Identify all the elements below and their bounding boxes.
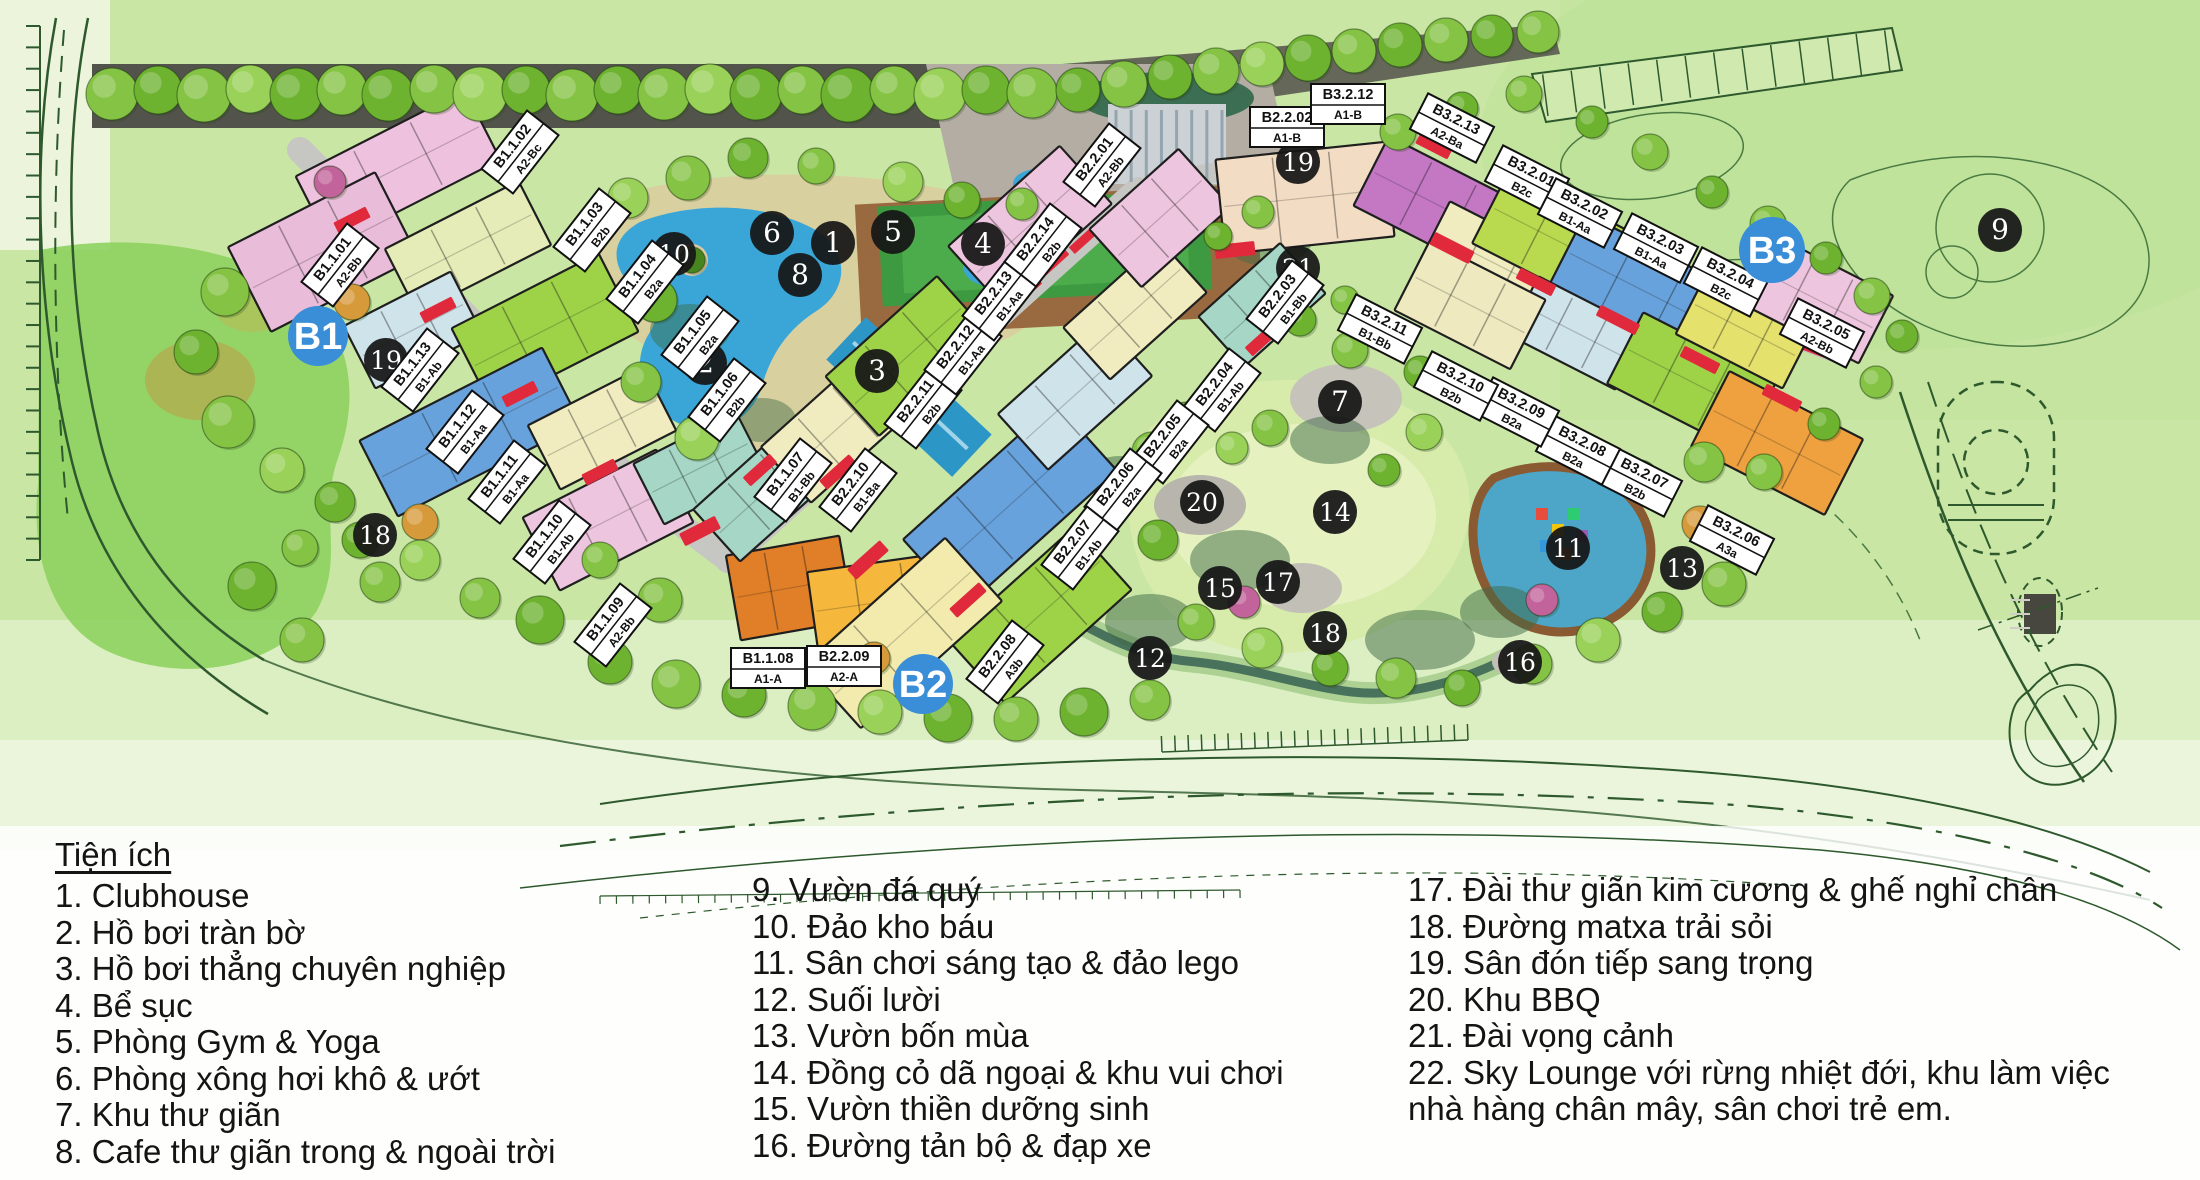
map-shape xyxy=(405,545,423,563)
map-shape xyxy=(323,71,346,94)
tick-mark xyxy=(1348,729,1349,745)
map-shape xyxy=(1010,192,1024,206)
amenity-marker-11: 11 xyxy=(1546,526,1590,570)
unit-type: A1-B xyxy=(1273,131,1301,145)
map-shape xyxy=(209,403,232,426)
map-shape xyxy=(553,76,576,99)
amenity-marker-number: 5 xyxy=(884,215,902,248)
map-shape xyxy=(1522,16,1541,35)
site-plan-canvas: 221234567891011121314151617181819192021B… xyxy=(0,0,2200,1180)
map-shape xyxy=(277,75,300,98)
map-shape xyxy=(1530,588,1544,602)
map-shape xyxy=(365,567,383,585)
tick-mark xyxy=(1414,726,1415,742)
zone-badge-label: B3 xyxy=(1748,230,1797,272)
amenity-marker-5: 5 xyxy=(871,210,915,254)
map-shape xyxy=(921,75,944,98)
map-shape xyxy=(407,508,423,524)
amenity-marker-number: 6 xyxy=(763,216,781,249)
map-shape xyxy=(1384,29,1404,49)
map-shape xyxy=(1430,24,1450,44)
amenity-marker-20: 20 xyxy=(1180,480,1224,524)
unit-code: B2.2.09 xyxy=(819,649,870,665)
map-shape xyxy=(1859,283,1875,299)
map-shape xyxy=(1337,337,1353,353)
amenity-marker-3: 3 xyxy=(855,349,899,393)
map-shape xyxy=(1582,624,1602,644)
map-shape xyxy=(1890,324,1904,338)
tick-mark xyxy=(1308,730,1309,746)
tick-mark xyxy=(1441,725,1442,741)
map-shape xyxy=(1247,633,1265,651)
map-shape xyxy=(465,583,483,601)
amenity-marker-number: 18 xyxy=(359,521,391,550)
map-shape xyxy=(1062,74,1082,94)
amenity-marker-12: 12 xyxy=(1128,636,1172,680)
unit-label-B3.2.12: B3.2.12A1-B xyxy=(1311,84,1385,124)
unit-type: A2-A xyxy=(830,670,858,684)
map-shape xyxy=(1408,360,1422,374)
amenity-marker-number: 12 xyxy=(1134,644,1166,673)
map-shape xyxy=(140,72,162,94)
map-shape xyxy=(1257,415,1273,431)
map-shape xyxy=(1013,74,1036,97)
amenity-marker-number: 20 xyxy=(1186,488,1218,517)
map-shape xyxy=(658,666,680,688)
tick-mark xyxy=(1374,728,1375,744)
tick-mark xyxy=(1427,726,1428,742)
map-shape xyxy=(460,74,484,98)
tick-mark xyxy=(1241,733,1242,749)
tick-mark xyxy=(1228,733,1229,749)
map-shape xyxy=(968,72,990,94)
map-shape xyxy=(1372,458,1386,472)
map-shape xyxy=(794,688,816,710)
map-shape xyxy=(613,183,631,201)
amenity-marker-9: 9 xyxy=(1978,208,2022,252)
unit-label-B2.2.09: B2.2.09A2-A xyxy=(807,646,881,686)
unit-code: B2.2.02 xyxy=(1262,110,1313,126)
map-shape xyxy=(888,167,906,185)
map-shape xyxy=(93,75,116,98)
map-shape xyxy=(645,75,668,98)
amenity-marker-number: 8 xyxy=(791,258,809,291)
map-shape xyxy=(1338,35,1358,55)
map-shape xyxy=(1864,370,1878,384)
map-shape xyxy=(286,624,306,644)
map-shape xyxy=(1143,525,1161,543)
map-shape xyxy=(1476,20,1495,39)
map-shape xyxy=(864,696,884,716)
amenity-marker-15: 15 xyxy=(1198,566,1242,610)
tick-mark xyxy=(1201,734,1202,750)
map-shape xyxy=(320,487,338,505)
amenity-marker-number: 7 xyxy=(1331,385,1349,418)
map-shape xyxy=(1511,81,1527,97)
map-shape xyxy=(1689,447,1707,465)
map-shape xyxy=(1568,508,1580,520)
tick-mark xyxy=(1281,731,1282,747)
map-shape xyxy=(1107,67,1128,88)
amenity-marker-7: 7 xyxy=(1318,380,1362,424)
tick-mark xyxy=(1401,727,1402,743)
amenity-marker-number: 14 xyxy=(1319,498,1351,527)
map-shape xyxy=(626,367,644,385)
tick-mark xyxy=(1255,732,1256,748)
map-shape xyxy=(1290,416,1370,464)
map-shape xyxy=(1208,226,1221,239)
tick-mark xyxy=(1188,735,1189,751)
map-shape xyxy=(1637,139,1653,155)
map-shape xyxy=(1814,246,1828,260)
amenity-marker-number: 3 xyxy=(868,354,886,387)
map-shape xyxy=(733,143,751,161)
map-shape xyxy=(1381,663,1399,681)
amenity-marker-6: 6 xyxy=(750,211,794,255)
amenity-marker-number: 9 xyxy=(1991,213,2009,246)
map-shape xyxy=(949,187,965,203)
map-shape xyxy=(508,72,530,94)
map-shape xyxy=(234,568,256,590)
amenity-marker-8: 8 xyxy=(778,253,822,297)
map-shape xyxy=(207,274,229,296)
zone-badge-label: B1 xyxy=(294,316,343,358)
map-shape xyxy=(1183,609,1199,625)
zone-badge-B1: B1 xyxy=(288,306,348,366)
map-shape xyxy=(1385,119,1401,135)
amenity-marker-number: 13 xyxy=(1666,554,1698,583)
amenity-marker-18: 18 xyxy=(1303,611,1347,655)
amenity-marker-number: 11 xyxy=(1552,534,1584,563)
map-shape xyxy=(1154,61,1174,81)
amenity-marker-number: 4 xyxy=(974,227,992,260)
amenity-marker-number: 1 xyxy=(824,226,842,259)
map-shape xyxy=(737,75,760,98)
map-shape xyxy=(1365,610,1475,670)
tick-mark xyxy=(1175,735,1176,751)
map-shape xyxy=(232,71,254,93)
map-shape xyxy=(600,72,622,94)
unit-type: A1-A xyxy=(754,672,782,686)
tick-mark xyxy=(1388,727,1389,743)
map-shape xyxy=(1199,54,1220,75)
map-shape xyxy=(1291,41,1312,62)
map-shape xyxy=(369,76,392,99)
map-shape xyxy=(318,170,332,184)
tick-mark xyxy=(1361,728,1362,744)
map-shape xyxy=(1220,436,1234,450)
tick-mark xyxy=(1321,730,1322,746)
zone-badge-B2: B2 xyxy=(893,654,953,714)
unit-label-B1.1.08: B1.1.08A1-A xyxy=(731,648,805,688)
map-shape xyxy=(1536,508,1548,520)
amenity-marker-13: 13 xyxy=(1660,546,1704,590)
map-shape xyxy=(1066,694,1088,716)
map-shape xyxy=(1411,419,1427,435)
amenity-marker-17: 17 xyxy=(1256,560,1300,604)
zone-badge-label: B2 xyxy=(899,664,948,706)
map-shape xyxy=(1246,200,1260,214)
map-shape xyxy=(672,162,692,182)
map-shape xyxy=(416,71,438,93)
map-shape xyxy=(1751,459,1767,475)
zone-badge-B3: B3 xyxy=(1739,217,1805,283)
map-shape xyxy=(803,153,819,169)
map-shape xyxy=(1700,180,1714,194)
tick-mark xyxy=(1268,732,1269,748)
map-shape xyxy=(184,75,208,99)
map-shape xyxy=(180,336,200,356)
map-shape xyxy=(1317,655,1333,671)
map-shape xyxy=(876,72,898,94)
amenity-marker-number: 15 xyxy=(1204,574,1236,603)
map-shape xyxy=(1449,675,1465,691)
tick-mark xyxy=(1215,734,1216,750)
tick-mark xyxy=(1334,729,1335,745)
map-shape xyxy=(828,75,852,99)
amenity-marker-16: 16 xyxy=(1498,640,1542,684)
amenity-marker-1: 1 xyxy=(811,221,855,265)
amenity-marker-14: 14 xyxy=(1313,490,1357,534)
map-shape xyxy=(1246,48,1266,68)
map-shape xyxy=(691,70,714,93)
amenity-marker-18: 18 xyxy=(353,513,397,557)
unit-code: B3.2.12 xyxy=(1323,87,1374,103)
tick-mark xyxy=(1161,736,1162,752)
map-shape xyxy=(1708,568,1728,588)
map-shape xyxy=(287,535,303,551)
map-shape xyxy=(1647,597,1665,615)
map-shape xyxy=(522,602,544,624)
map-shape xyxy=(587,547,603,563)
map-shape xyxy=(644,584,664,604)
legend-wash xyxy=(0,826,2200,1180)
amenity-marker-number: 16 xyxy=(1504,648,1536,677)
map-shape xyxy=(1135,685,1153,703)
tick-mark xyxy=(1454,725,1455,741)
tick-mark xyxy=(1467,724,1468,740)
map-shape xyxy=(1000,703,1020,723)
amenity-marker-number: 19 xyxy=(1282,148,1314,177)
amenity-marker-number: 17 xyxy=(1262,568,1294,597)
map-shape xyxy=(1812,412,1826,426)
amenity-marker-number: 18 xyxy=(1309,619,1341,648)
map-shape xyxy=(784,72,806,94)
map-shape xyxy=(1335,290,1348,303)
site-plan-map: 221234567891011121314151617181819192021B… xyxy=(0,0,2200,1180)
map-shape xyxy=(1580,110,1594,124)
map-shape xyxy=(266,454,286,474)
tick-mark xyxy=(1294,731,1295,747)
unit-type: A1-B xyxy=(1334,108,1362,122)
amenity-marker-4: 4 xyxy=(961,222,1005,266)
unit-code: B1.1.08 xyxy=(743,651,794,667)
